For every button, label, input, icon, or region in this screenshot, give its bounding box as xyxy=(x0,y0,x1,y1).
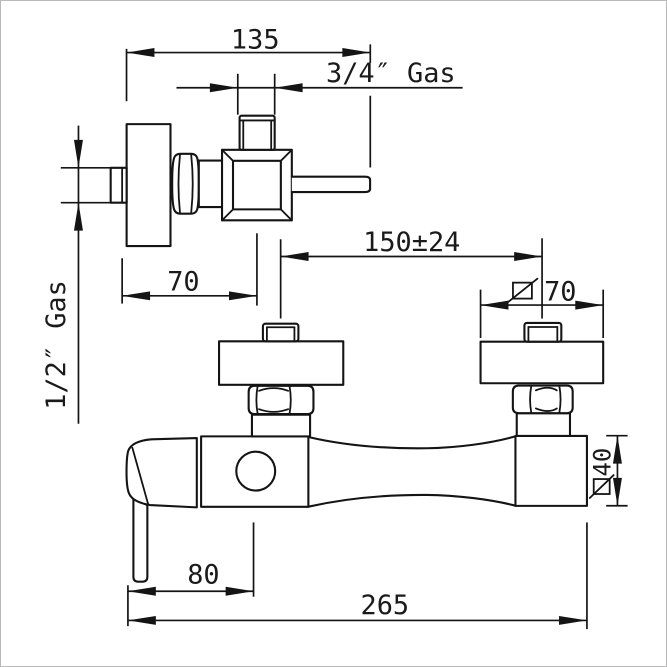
dim-inlet-spacing-text: 150±24 xyxy=(363,227,460,258)
dim-center-offset-arrow-right xyxy=(229,291,257,300)
dim-overall-arrow-right xyxy=(559,616,587,625)
dim-body-text: 40 xyxy=(589,448,617,477)
body-block-right xyxy=(515,436,586,506)
body-waist-top-edge xyxy=(308,436,515,448)
dim-wall-thread-text: 1/2″ Gas xyxy=(41,280,72,410)
dim-top-thread-arrow-right xyxy=(275,83,303,92)
dim-flange-arrow-right xyxy=(575,301,603,310)
inlet-nipple xyxy=(111,168,127,203)
dim-handle-arrow-left xyxy=(128,587,156,596)
dim-wall-thread-arrow-down xyxy=(74,140,83,168)
inlet-union-left xyxy=(252,415,310,437)
dim-body-arrow-down xyxy=(613,478,622,506)
dim-handle-arrow-right xyxy=(226,587,254,596)
diameter-symbol xyxy=(590,475,614,498)
wall-flange-side xyxy=(127,124,171,246)
dim-center-offset-text: 70 xyxy=(167,267,199,298)
dim-inlet-spacing-arrow-right xyxy=(514,252,542,261)
front-view xyxy=(127,323,604,582)
dim-depth-arrow-right xyxy=(342,48,370,57)
hex-nut-left-outline xyxy=(249,386,314,414)
valve-neck xyxy=(199,161,222,208)
inlet-boss-right xyxy=(524,323,561,342)
hex-nut-right-outline xyxy=(513,386,573,414)
technical-drawing-sheet: 135 3/4″ Gas 1/2″ Gas 70 xyxy=(0,0,667,667)
dim-inlet-spacing-arrow-left xyxy=(281,252,309,261)
dim-overall-text: 265 xyxy=(361,590,410,621)
dim-wall-thread: 1/2″ Gas xyxy=(41,126,113,424)
wall-flange-left xyxy=(219,341,343,385)
dim-handle-text: 80 xyxy=(187,560,219,591)
hex-nut-side-outline xyxy=(172,154,199,214)
spout-stem xyxy=(292,177,370,192)
body-waist-bottom-edge xyxy=(308,495,515,507)
side-view xyxy=(111,116,370,246)
dim-body-diameter: 40 xyxy=(589,436,628,506)
dim-center-offset-arrow-left xyxy=(122,291,150,300)
dim-top-thread: 3/4″ Gas xyxy=(176,58,462,115)
dim-flange-text: 70 xyxy=(544,277,576,308)
dim-wall-thread-arrow-up xyxy=(74,203,83,231)
dim-top-thread-text: 3/4″ Gas xyxy=(326,58,456,89)
cartridge-block xyxy=(201,436,308,506)
diameter-symbol xyxy=(507,279,537,303)
dim-top-thread-arrow-left xyxy=(210,83,238,92)
dim-flange-arrow-left xyxy=(481,301,509,310)
lever-handle xyxy=(133,498,147,582)
inlet-union-right xyxy=(517,413,570,436)
dim-depth-text: 135 xyxy=(231,24,280,55)
wall-flange-right xyxy=(481,342,604,384)
shower-mixer-drawing: 135 3/4″ Gas 1/2″ Gas 70 xyxy=(1,1,666,666)
dim-depth-arrow-left xyxy=(127,48,155,57)
body-end-cap-left xyxy=(127,438,197,507)
dim-overall-arrow-left xyxy=(128,616,156,625)
